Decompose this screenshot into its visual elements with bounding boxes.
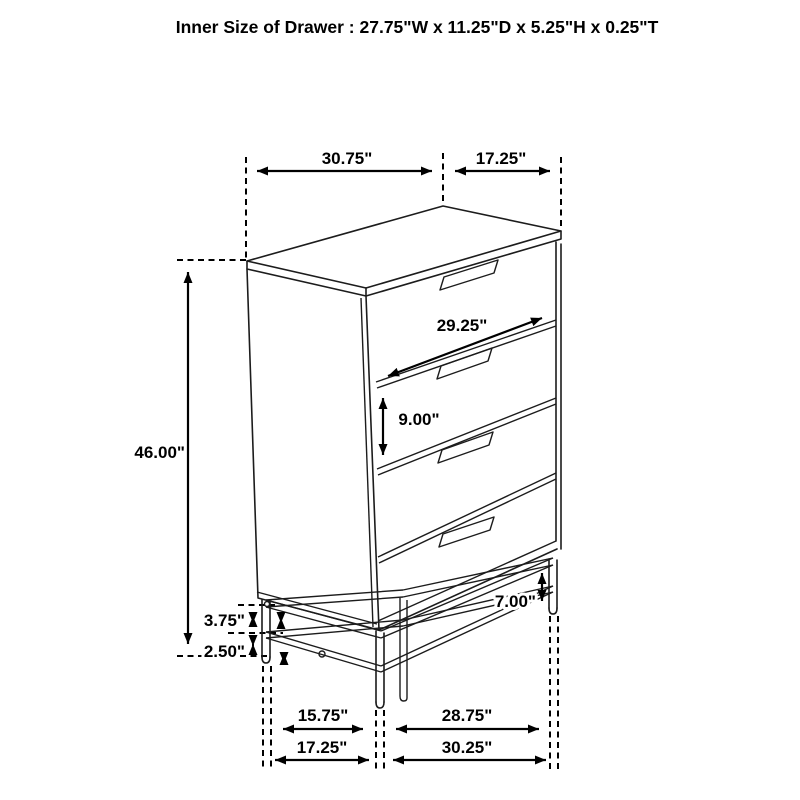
dim-drawer-height: 9.00" — [398, 410, 439, 429]
dim-base-outer-width: 30.25" — [442, 738, 493, 757]
chest-body — [247, 242, 561, 630]
dim-base-rail-height: 3.75" — [204, 611, 245, 630]
diagram-title: Inner Size of Drawer : 27.75"W x 11.25"D… — [176, 17, 659, 37]
dim-drawer-width: 29.25" — [437, 316, 488, 335]
dim-base-outer-depth: 17.25" — [297, 738, 348, 757]
base-frame — [262, 558, 557, 708]
dim-base-total-height: 7.00" — [495, 592, 536, 611]
dim-base-inner-width: 28.75" — [442, 706, 493, 725]
chest-top — [247, 206, 561, 296]
dim-base-clearance: 2.50" — [204, 642, 245, 661]
extension-lines — [177, 153, 561, 770]
dimension-diagram: Inner Size of Drawer : 27.75"W x 11.25"D… — [0, 0, 800, 800]
chest-line-art: Inner Size of Drawer : 27.75"W x 11.25"D… — [0, 0, 800, 800]
dimension-labels: 30.75" 17.25" 29.25" 9.00" 46.00" 3.75" … — [134, 149, 536, 757]
dim-top-depth: 17.25" — [476, 149, 527, 168]
dim-overall-height: 46.00" — [134, 443, 185, 462]
dim-top-width: 30.75" — [322, 149, 373, 168]
dim-base-inner-depth: 15.75" — [298, 706, 349, 725]
bolt-detail — [265, 602, 270, 607]
